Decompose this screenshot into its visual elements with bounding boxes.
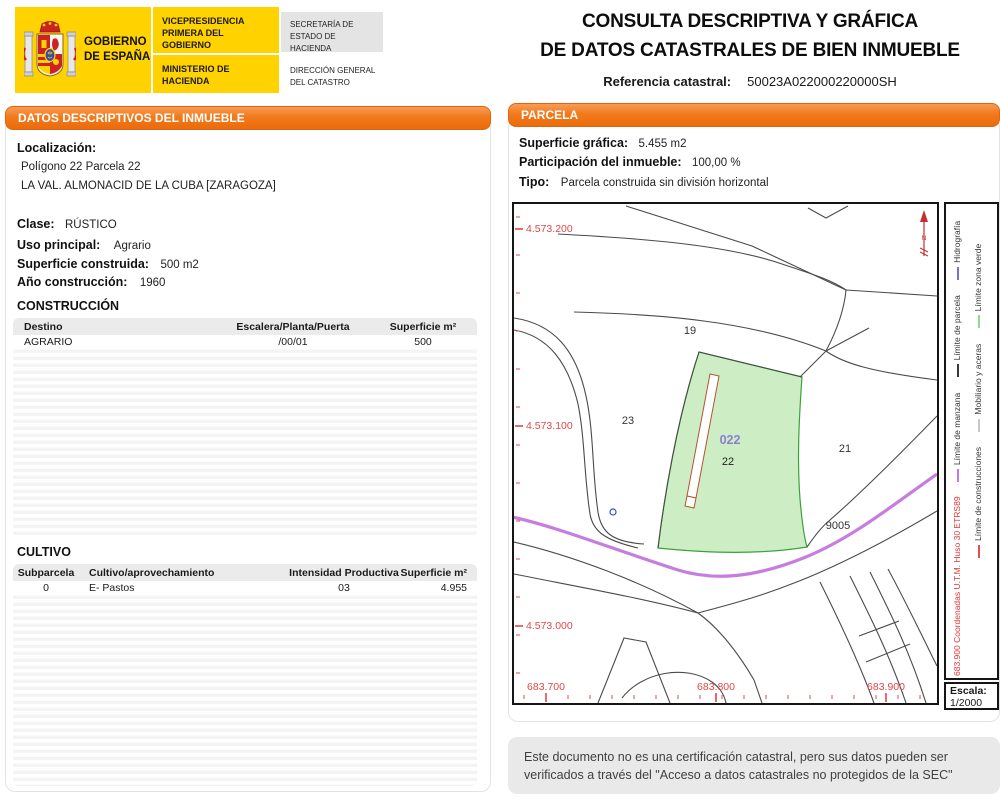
superficie-construida-value: 500 m2 xyxy=(160,259,198,271)
cultivo-table-header: Subparcela Cultivo/aprovechamiento Inten… xyxy=(13,564,477,581)
legend-item: Hidrografía xyxy=(952,221,962,280)
cell-escalera: /00/01 xyxy=(213,336,373,348)
parcel-label-9005: 9005 xyxy=(826,520,850,532)
superficie-construida-row: Superficie construida: 500 m2 xyxy=(17,255,199,273)
cultivo-title: CULTIVO xyxy=(17,545,71,559)
y-coordinate-label: 4.573.000 xyxy=(526,620,573,632)
ano-construccion-value: 1960 xyxy=(140,277,166,289)
tipo-label: Tipo: xyxy=(519,175,549,189)
parcel-label-22: 22 xyxy=(722,456,734,468)
secretary-column: SECRETARÍA DE ESTADO DE HACIENDA DIRECCI… xyxy=(281,7,383,93)
parcel-label-21: 21 xyxy=(839,443,851,455)
disclaimer-note: Este documento no es una certificación c… xyxy=(508,737,1000,794)
table-row: AGRARIO /00/01 500 xyxy=(13,335,477,349)
bottom-axis-ticks xyxy=(524,693,920,702)
document-title: CONSULTA DESCRIPTIVA Y GRÁFICA DE DATOS … xyxy=(505,8,995,89)
subject-parcel-shape xyxy=(658,352,807,552)
vicepresidencia-label: VICEPRESIDENCIA PRIMERA DEL GOBIERNO xyxy=(153,7,279,53)
col-escalera: Escalera/Planta/Puerta xyxy=(213,321,373,333)
section-header-datos-descriptivos: DATOS DESCRIPTIVOS DEL INMUEBLE xyxy=(5,106,491,130)
parcela-line-sample xyxy=(957,364,959,377)
zona-verde-line-sample xyxy=(978,315,980,328)
col-intensidad: Intensidad Productiva xyxy=(289,567,399,579)
cell-destino: AGRARIO xyxy=(13,336,213,348)
legend-rotated-content: 683.900 Coordenadas U.T.M. Huso 30 ETRS8… xyxy=(947,204,997,676)
table-row: 0 E- Pastos 03 4.955 xyxy=(13,581,477,595)
legend-item: Límite de construcciones xyxy=(973,447,983,558)
property-data-panel: Localización: Polígono 22 Parcela 22 LA … xyxy=(5,118,491,792)
left-axis-ticks xyxy=(515,217,523,673)
north-arrow-icon: N xyxy=(920,210,928,256)
utm-coordinates-note: 683.900 Coordenadas U.T.M. Huso 30 ETRS8… xyxy=(952,496,962,676)
direccion-general-label: DIRECCIÓN GENERAL DEL CATASTRO xyxy=(281,52,383,89)
point-marker xyxy=(610,509,616,515)
scale-box: Escala: 1/2000 xyxy=(944,682,999,710)
superficie-grafica-row: Superficie gráfica: 5.455 m2 xyxy=(519,134,686,152)
legend-item: Límite zona verde xyxy=(973,244,983,329)
y-coordinate-label: 4.573.200 xyxy=(526,223,573,235)
col-cultivo: Cultivo/aprovechamiento xyxy=(79,567,289,579)
cadastral-document: { "header": { "logo": { "government": "G… xyxy=(0,0,1000,800)
construccion-title: CONSTRUCCIÓN xyxy=(17,299,119,313)
cell-subparcela: 0 xyxy=(13,582,79,594)
tipo-row: Tipo: Parcela construida sin división ho… xyxy=(519,173,769,191)
col-destino: Destino xyxy=(13,321,213,333)
title-line-2: DE DATOS CATASTRALES DE BIEN INMUEBLE xyxy=(505,37,995,66)
reference-value: 50023A022000220000SH xyxy=(747,74,897,89)
subparcel-label-022: 022 xyxy=(720,433,741,447)
section-header-parcela: PARCELA xyxy=(508,103,1000,127)
localizacion-label: Localización: xyxy=(17,141,96,155)
localizacion-line1: Polígono 22 Parcela 22 xyxy=(21,161,141,173)
cadastral-reference: Referencia catastral:50023A022000220000S… xyxy=(505,74,995,89)
cell-superficie: 500 xyxy=(373,336,473,348)
uso-principal-row: Uso principal: Agrario xyxy=(17,236,151,254)
ano-construccion-label: Año construcción: xyxy=(17,275,127,289)
localizacion-line2: LA VAL. ALMONACID DE LA CUBA [ZARAGOZA] xyxy=(21,180,276,192)
cell-cultivo: E- Pastos xyxy=(79,582,289,594)
superficie-grafica-value: 5.455 m2 xyxy=(639,138,687,150)
ano-construccion-row: Año construcción: 1960 xyxy=(17,273,165,291)
cadastral-map: 4.573.200 4.573.100 4.573.000 683.700 68… xyxy=(512,202,939,705)
scale-value: 1/2000 xyxy=(950,697,993,709)
clase-value: RÚSTICO xyxy=(65,219,117,231)
x-coordinate-label: 683.800 xyxy=(697,681,735,693)
col-superficie-m2: Superficie m² xyxy=(399,567,471,579)
legend-row-1: 683.900 Coordenadas U.T.M. Huso 30 ETRS8… xyxy=(947,204,968,676)
map-legend: 683.900 Coordenadas U.T.M. Huso 30 ETRS8… xyxy=(944,202,999,680)
title-line-1: CONSULTA DESCRIPTIVA Y GRÁFICA xyxy=(505,8,995,37)
superficie-construida-label: Superficie construida: xyxy=(17,257,149,271)
participacion-value: 100,00 % xyxy=(692,157,741,169)
spain-logo-box: GOBIERNO DE ESPAÑA xyxy=(15,7,151,93)
uso-principal-value: Agrario xyxy=(114,240,151,252)
legend-item: Límite de manzana xyxy=(952,393,962,482)
cell-intensidad: 03 xyxy=(289,582,399,594)
legend-item: Límite de parcela xyxy=(952,295,962,377)
government-header: GOBIERNO DE ESPAÑA VICEPRESIDENCIA PRIME… xyxy=(15,7,383,93)
svg-text:N: N xyxy=(922,235,927,242)
ministerio-label: MINISTERIO DE HACIENDA xyxy=(153,55,279,93)
col-subparcela: Subparcela xyxy=(13,567,79,579)
reference-label: Referencia catastral: xyxy=(603,74,731,89)
cell-superficie-m2: 4.955 xyxy=(399,582,471,594)
construccion-table-header: Destino Escalera/Planta/Puerta Superfici… xyxy=(13,318,477,335)
government-name: GOBIERNO DE ESPAÑA xyxy=(84,35,151,65)
construcciones-line-sample xyxy=(978,545,980,558)
manzana-line-sample xyxy=(957,469,959,482)
legend-item: Mobiliario y aceras xyxy=(973,344,983,432)
participacion-label: Participación del inmueble: xyxy=(519,155,682,169)
x-coordinate-label: 683.900 xyxy=(867,681,905,693)
clase-row: Clase: RÚSTICO xyxy=(17,215,117,233)
spain-coat-of-arms-icon xyxy=(24,18,76,82)
map-drawing: 4.573.200 4.573.100 4.573.000 683.700 68… xyxy=(514,204,937,703)
mobiliario-line-sample xyxy=(978,419,980,432)
parcel-label-23: 23 xyxy=(622,415,634,427)
cultivo-table: Subparcela Cultivo/aprovechamiento Inten… xyxy=(13,564,477,786)
secretaria-estado-label: SECRETARÍA DE ESTADO DE HACIENDA xyxy=(281,12,383,52)
y-coordinate-label: 4.573.100 xyxy=(526,420,573,432)
x-coordinate-label: 683.700 xyxy=(527,681,565,693)
hidrografia-line-sample xyxy=(957,267,959,280)
clase-label: Clase: xyxy=(17,217,55,231)
scale-label: Escala: xyxy=(950,685,993,697)
col-superficie: Superficie m² xyxy=(373,321,473,333)
ministry-column: VICEPRESIDENCIA PRIMERA DEL GOBIERNO MIN… xyxy=(153,7,279,93)
legend-row-2: Límite de construcciones Mobiliario y ac… xyxy=(968,204,989,676)
construccion-table: Destino Escalera/Planta/Puerta Superfici… xyxy=(13,318,477,538)
participacion-row: Participación del inmueble: 100,00 % xyxy=(519,153,741,171)
tipo-value: Parcela construida sin división horizont… xyxy=(561,177,769,189)
superficie-grafica-label: Superficie gráfica: xyxy=(519,136,628,150)
parcel-label-19: 19 xyxy=(684,325,696,337)
uso-principal-label: Uso principal: xyxy=(17,238,100,252)
